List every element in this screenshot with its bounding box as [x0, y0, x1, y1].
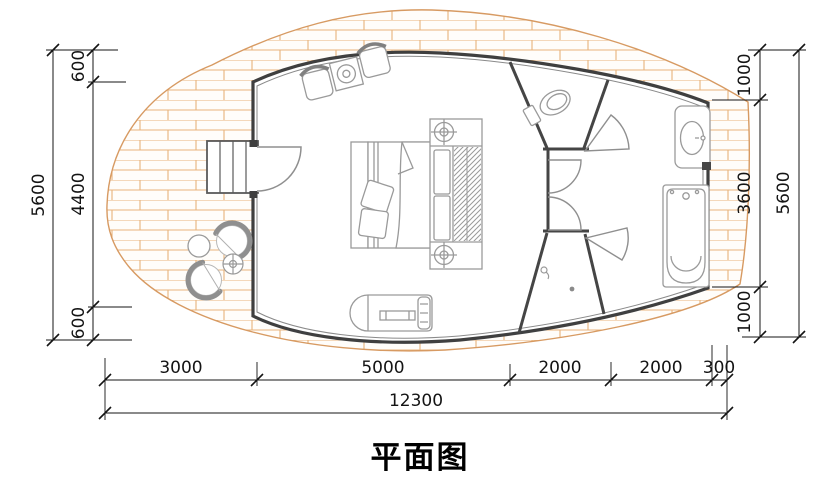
dim-bottom-3000: 3000 [159, 358, 202, 378]
armchair-icon [359, 46, 392, 79]
wardrobe [430, 119, 482, 269]
dim-bottom-2000-b: 2000 [639, 358, 682, 378]
door-opening [248, 146, 259, 192]
pillow-icon [358, 208, 388, 238]
dim-bottom-5000: 5000 [361, 358, 404, 378]
shower-drain-icon [570, 287, 575, 292]
tv-cabinet [350, 295, 432, 331]
dim-left-600-bottom: 600 [69, 307, 89, 339]
dim-left-outer: 5600 [29, 173, 49, 216]
outdoor-table-light [223, 254, 243, 274]
dim-bottom-300: 300 [703, 358, 735, 378]
floor-plan-page: 5600 600 4400 600 1000 3600 1000 5600 30… [0, 0, 837, 496]
wall-block [702, 162, 711, 170]
dim-bottom-2000-a: 2000 [538, 358, 581, 378]
dim-left-4400: 4400 [69, 172, 89, 215]
dim-right-1000-top: 1000 [735, 53, 755, 96]
dim-bottom-total: 12300 [389, 391, 443, 411]
tv-icon [380, 311, 415, 320]
door-jamb-top [250, 140, 258, 147]
bed-group [351, 142, 432, 248]
wash-basin-icon [675, 106, 710, 168]
armchair-icon [301, 68, 334, 101]
page-title: 平面图 [371, 440, 470, 476]
outdoor-chair-seat [217, 226, 248, 257]
blanket [396, 142, 432, 248]
dim-right-outer: 5600 [774, 171, 794, 214]
door-jamb-bottom [250, 191, 258, 198]
outdoor-round-table-icon [188, 235, 210, 257]
outdoor-chair-seat [191, 265, 222, 296]
floor-plan-drawing: 5600 600 4400 600 1000 3600 1000 5600 30… [0, 0, 837, 496]
dim-right-3600: 3600 [735, 171, 755, 214]
dim-left-600-top: 600 [69, 50, 89, 82]
bathtub-icon [663, 185, 709, 287]
dim-right-1000-bottom: 1000 [735, 290, 755, 333]
